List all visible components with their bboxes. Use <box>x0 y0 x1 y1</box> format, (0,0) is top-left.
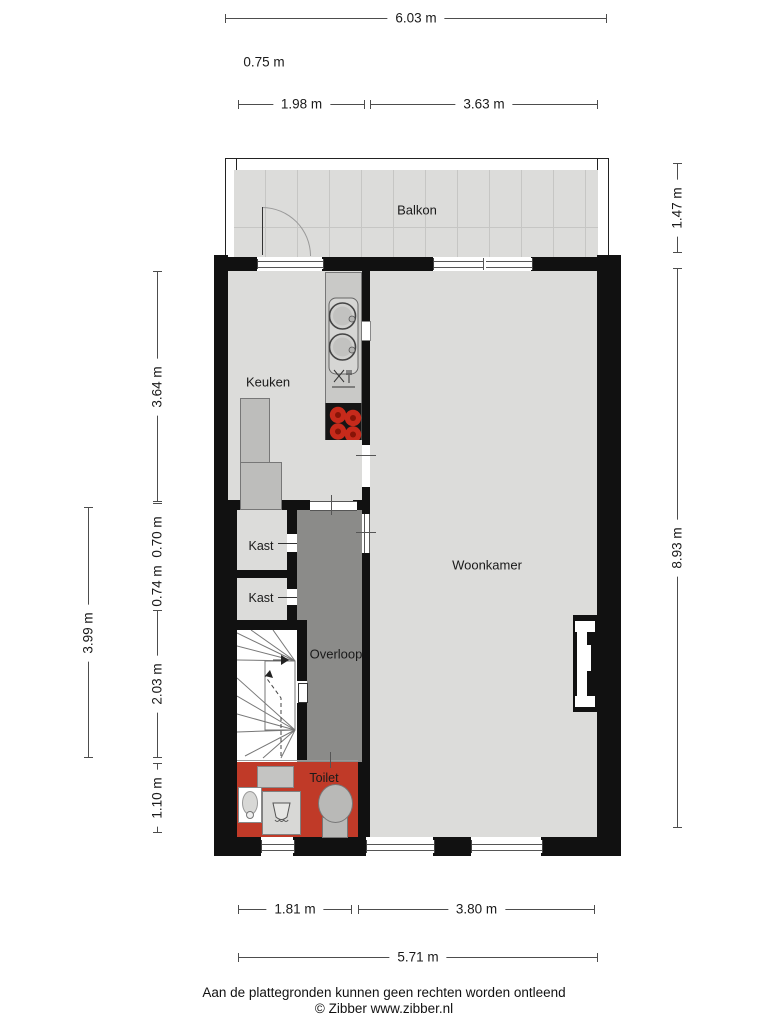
chimney <box>573 615 597 712</box>
toilet-door-tick <box>330 752 331 768</box>
opening-center-tick <box>331 495 332 515</box>
room-label-kast-1: Kast <box>248 539 273 553</box>
room-label-keuken: Keuken <box>246 375 290 390</box>
door-frame-lines <box>258 261 323 268</box>
chimney-slot-top <box>575 621 595 632</box>
wall-bottom-seg1 <box>214 837 261 856</box>
opening-kitchen-landing <box>310 501 357 511</box>
wall-bottom-seg4 <box>541 837 621 856</box>
chimney-slot-side <box>577 632 587 696</box>
dim-label: 1.47 m <box>670 179 685 236</box>
opening-kitchen-livingroom <box>362 445 370 487</box>
wall-between-closets <box>237 570 297 578</box>
balcony-door-opening <box>257 259 324 269</box>
wall-top-seg1 <box>214 257 257 271</box>
window-glass-lines <box>367 844 434 851</box>
door-jamb-bottom <box>362 553 370 557</box>
dim-label: 1.98 m <box>273 97 330 112</box>
closet1-door-line <box>278 543 297 544</box>
wall-below-closet2 <box>237 620 307 630</box>
dim-label: 1.81 m <box>266 902 323 917</box>
wall-bottom-seg3 <box>433 837 471 856</box>
window-bottom-living-right <box>471 840 543 853</box>
dim-label: 2.03 m <box>150 655 165 712</box>
door-landing-livingroom <box>362 510 370 557</box>
dim-label: 3.80 m <box>448 902 505 917</box>
dim-closet-1: 0.70 m <box>150 516 165 557</box>
threshold-tick-lower <box>356 532 376 533</box>
stairs <box>237 630 297 760</box>
floorplan-page: Balkon Keuken Woonkamer Kast Kast Overlo… <box>0 0 768 1024</box>
kitchen-sink <box>329 298 358 374</box>
dim-left-stairs: 2.03 m <box>151 610 164 758</box>
chimney-slot-bottom <box>575 696 595 707</box>
balcony-parapet-right <box>597 158 609 259</box>
dim-left-overall: 3.99 m <box>82 507 95 758</box>
stairs-door-leaf <box>298 683 308 703</box>
threshold-tick-upper <box>356 455 376 456</box>
wall-left-thick <box>214 502 237 856</box>
wall-corner-v <box>362 487 370 510</box>
room-label-overloop: Overloop <box>310 647 363 662</box>
dim-label: 3.99 m <box>81 604 96 661</box>
dim-top-overall: 6.03 m <box>225 12 607 25</box>
kitchen-counter-left-lower <box>240 462 282 510</box>
livingroom-floor <box>370 271 597 837</box>
wall-top-seg2 <box>322 257 433 271</box>
kitchen-counter-right <box>325 272 362 440</box>
wall-toilet-living <box>358 762 370 837</box>
dim-left-kitchen: 3.64 m <box>151 271 164 502</box>
wall-landing-living <box>362 557 370 762</box>
wall-top-seg3 <box>531 257 621 271</box>
window-bottom-living-left <box>366 840 435 853</box>
window-top-livingroom <box>433 258 533 270</box>
dim-bottom-livingroom: 3.80 m <box>358 903 595 916</box>
room-label-woonkamer: Woonkamer <box>452 558 522 573</box>
stairs-arrow-up <box>265 670 273 678</box>
wall-bottom-seg2 <box>293 837 366 856</box>
dim-tick-closets-top <box>153 503 162 504</box>
dim-bottom-toilet: 1.81 m <box>238 903 352 916</box>
chimney-slot-step <box>587 645 591 671</box>
toilet-bowl <box>318 784 353 823</box>
dim-right-balcony: 1.47 m <box>671 163 684 253</box>
dim-label: 6.03 m <box>387 11 444 26</box>
window-bottom-toilet <box>261 840 295 853</box>
washbasin-drain <box>246 811 254 819</box>
wall-niche-sink <box>361 321 371 341</box>
kitchen-counter-left-upper <box>240 398 270 464</box>
dim-label: 3.63 m <box>455 97 512 112</box>
closet2-door-line <box>278 597 297 598</box>
door-jamb-top <box>362 510 370 514</box>
window-glass-lines <box>472 844 542 851</box>
footer-copyright: © Zibber www.zibber.nl <box>0 1001 768 1016</box>
room-label-kast-2: Kast <box>248 591 273 605</box>
dim-balcony-left: 1.98 m <box>238 98 365 111</box>
balcony-door-leaf <box>262 207 263 255</box>
dim-label: 1.10 m <box>150 769 165 826</box>
shower-tray <box>262 791 301 835</box>
dim-label: 3.64 m <box>150 358 165 415</box>
toilet-counter <box>257 766 294 788</box>
dim-left-toilet: 1.10 m <box>151 763 164 833</box>
washbasin <box>238 787 262 823</box>
dim-label: 8.93 m <box>670 519 685 576</box>
dim-bottom-overall: 5.71 m <box>238 951 598 964</box>
window-divider <box>483 258 486 270</box>
footer-disclaimer: Aan de plattegronden kunnen geen rechten… <box>0 985 768 1000</box>
room-label-toilet: Toilet <box>309 771 338 785</box>
toilet-threshold-line <box>237 760 358 761</box>
cooktop <box>326 403 362 440</box>
dim-right-overall: 8.93 m <box>671 268 684 828</box>
room-label-balkon: Balkon <box>397 203 437 218</box>
dim-closet-2: 0.74 m <box>150 565 165 606</box>
dim-balcony-right: 3.63 m <box>370 98 598 111</box>
wall-kitchen-living-upper <box>362 271 370 445</box>
door-leaf-lines <box>364 510 370 557</box>
wall-right-outer <box>597 255 621 856</box>
dim-balcony-offset: 0.75 m <box>243 55 284 70</box>
window-glass-lines <box>262 844 294 851</box>
dim-label: 5.71 m <box>389 950 446 965</box>
